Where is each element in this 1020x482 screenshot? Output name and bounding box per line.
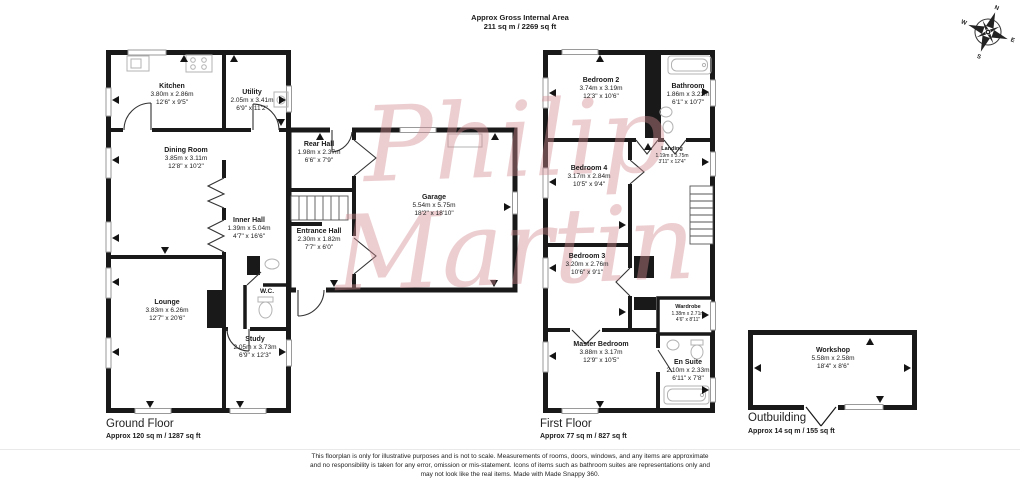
- room-label-utility: Utility 2.05m x 3.41m 6'9" x 11'2": [231, 88, 274, 113]
- room-label-landing: Landing 1.19m x 3.75m 3'11" x 12'4": [655, 146, 688, 166]
- room-metric: 1.86m x 3.23m: [667, 91, 710, 99]
- room-name: En Suite: [667, 358, 710, 367]
- room-label-wardrobe: Wardrobe 1.38m x 2.71m 4'6" x 8'11": [671, 304, 704, 324]
- first-floor-area: Approx 77 sq m / 827 sq ft: [540, 433, 627, 440]
- room-metric: 2.05m x 3.41m: [231, 97, 274, 105]
- floorplan-page: N E S W Philip Martin Approx Gross Inter…: [0, 0, 1020, 482]
- room-metric: 2.10m x 2.33m: [667, 367, 710, 375]
- room-imperial: 6'9" x 12'3": [234, 352, 277, 360]
- room-label-inner-hall: Inner Hall 1.39m x 5.04m 4'7" x 16'6": [228, 216, 271, 241]
- room-name: Landing: [655, 146, 688, 153]
- room-imperial: 6'9" x 11'2": [231, 105, 274, 113]
- room-label-dining-room: Dining Room 3.85m x 3.11m 12'8" x 10'2": [164, 146, 208, 171]
- room-name: Bedroom 2: [580, 76, 623, 85]
- room-imperial: 12'8" x 10'2": [164, 163, 208, 171]
- gross-area-title: Approx Gross Internal Area: [471, 13, 569, 22]
- room-imperial: 6'1" x 10'7": [667, 99, 710, 107]
- room-name: Rear Hall: [298, 140, 341, 149]
- room-metric: 2.30m x 1.82m: [297, 236, 342, 244]
- room-metric: 3.88m x 3.17m: [573, 349, 628, 357]
- room-metric: 3.17m x 2.84m: [568, 173, 611, 181]
- room-label-wc: W.C.: [260, 288, 274, 296]
- room-label-study: Study 2.05m x 3.73m 6'9" x 12'3": [234, 335, 277, 360]
- disclaimer-line3: may not look like the real items. Made w…: [421, 470, 600, 480]
- room-label-en-suite: En Suite 2.10m x 2.33m 6'11" x 7'8": [667, 358, 710, 383]
- room-label-rear-hall: Rear Hall 1.98m x 2.37m 6'6" x 7'9": [298, 140, 341, 165]
- room-metric: 3.83m x 6.26m: [146, 307, 189, 315]
- room-imperial: 4'6" x 8'11": [671, 317, 704, 323]
- room-label-bedroom-4: Bedroom 4 3.17m x 2.84m 10'5" x 9'4": [568, 164, 611, 189]
- compass-west-label: W: [960, 19, 968, 27]
- compass-south-label: S: [976, 54, 982, 61]
- room-name: Master Bedroom: [573, 340, 628, 349]
- room-name: Garage: [413, 193, 456, 202]
- room-metric: 3.80m x 2.86m: [151, 91, 194, 99]
- room-metric: 3.74m x 3.19m: [580, 85, 623, 93]
- outbuilding-area: Approx 14 sq m / 155 sq ft: [748, 428, 835, 435]
- room-metric: 3.85m x 3.11m: [164, 155, 208, 163]
- room-name: Lounge: [146, 298, 189, 307]
- compass-icon: N E S W: [951, 0, 1020, 70]
- room-imperial: 12'6" x 9'5": [151, 99, 194, 107]
- first-floor-title: First Floor: [540, 418, 592, 430]
- room-label-garage: Garage 5.54m x 5.75m 18'2" x 18'10": [413, 193, 456, 218]
- room-imperial: 10'6" x 9'1": [566, 269, 609, 277]
- room-imperial: 7'7" x 6'0": [297, 244, 342, 252]
- room-label-lounge: Lounge 3.83m x 6.26m 12'7" x 20'6": [146, 298, 189, 323]
- room-label-kitchen: Kitchen 3.80m x 2.86m 12'6" x 9'5": [151, 82, 194, 107]
- room-metric: 5.54m x 5.75m: [413, 202, 456, 210]
- room-metric: 2.05m x 3.73m: [234, 344, 277, 352]
- room-name: Bedroom 3: [566, 252, 609, 261]
- room-label-entrance-hall: Entrance Hall 2.30m x 1.82m 7'7" x 6'0": [297, 227, 342, 252]
- compass-north-label: N: [993, 5, 999, 12]
- outbuilding-title: Outbuilding: [748, 412, 806, 424]
- gross-area-value: 211 sq m / 2269 sq ft: [484, 22, 557, 31]
- ground-floor-area: Approx 120 sq m / 1287 sq ft: [106, 433, 201, 440]
- floorplan-drawing: N E S W: [0, 0, 1020, 482]
- room-label-bedroom-2: Bedroom 2 3.74m x 3.19m 12'3" x 10'6": [580, 76, 623, 101]
- room-name: Inner Hall: [228, 216, 271, 225]
- room-name: Utility: [231, 88, 274, 97]
- ground-floor-title: Ground Floor: [106, 418, 174, 430]
- room-label-bathroom: Bathroom 1.86m x 3.23m 6'1" x 10'7": [667, 82, 710, 107]
- room-imperial: 12'9" x 10'5": [573, 357, 628, 365]
- footer-divider: [0, 449, 1020, 450]
- staircase-ground-icon: [291, 196, 348, 220]
- room-imperial: 12'3" x 10'6": [580, 93, 623, 101]
- room-name: W.C.: [260, 288, 274, 296]
- room-imperial: 4'7" x 16'6": [228, 233, 271, 241]
- room-label-workshop: Workshop 5.58m x 2.58m 18'4" x 8'6": [812, 346, 855, 371]
- room-name: Dining Room: [164, 146, 208, 155]
- room-metric: 1.39m x 5.04m: [228, 225, 271, 233]
- room-imperial: 18'2" x 18'10": [413, 210, 456, 218]
- room-imperial: 10'5" x 9'4": [568, 181, 611, 189]
- room-imperial: 18'4" x 8'6": [812, 363, 855, 371]
- room-metric: 5.58m x 2.58m: [812, 355, 855, 363]
- room-name: Bedroom 4: [568, 164, 611, 173]
- room-imperial: 12'7" x 20'6": [146, 315, 189, 323]
- compass-east-label: E: [1010, 37, 1016, 44]
- room-name: Wardrobe: [671, 304, 704, 311]
- room-metric: 1.98m x 2.37m: [298, 149, 341, 157]
- room-label-bedroom-3: Bedroom 3 3.20m x 2.76m 10'6" x 9'1": [566, 252, 609, 277]
- room-imperial: 6'11" x 7'8": [667, 375, 710, 383]
- room-label-master-bedroom: Master Bedroom 3.88m x 3.17m 12'9" x 10'…: [573, 340, 628, 365]
- room-name: Workshop: [812, 346, 855, 355]
- room-name: Entrance Hall: [297, 227, 342, 236]
- room-imperial: 6'6" x 7'9": [298, 157, 341, 165]
- room-imperial: 3'11" x 12'4": [655, 159, 688, 165]
- room-name: Kitchen: [151, 82, 194, 91]
- room-name: Study: [234, 335, 277, 344]
- staircase-first-icon: [690, 186, 713, 244]
- room-metric: 3.20m x 2.76m: [566, 261, 609, 269]
- room-name: Bathroom: [667, 82, 710, 91]
